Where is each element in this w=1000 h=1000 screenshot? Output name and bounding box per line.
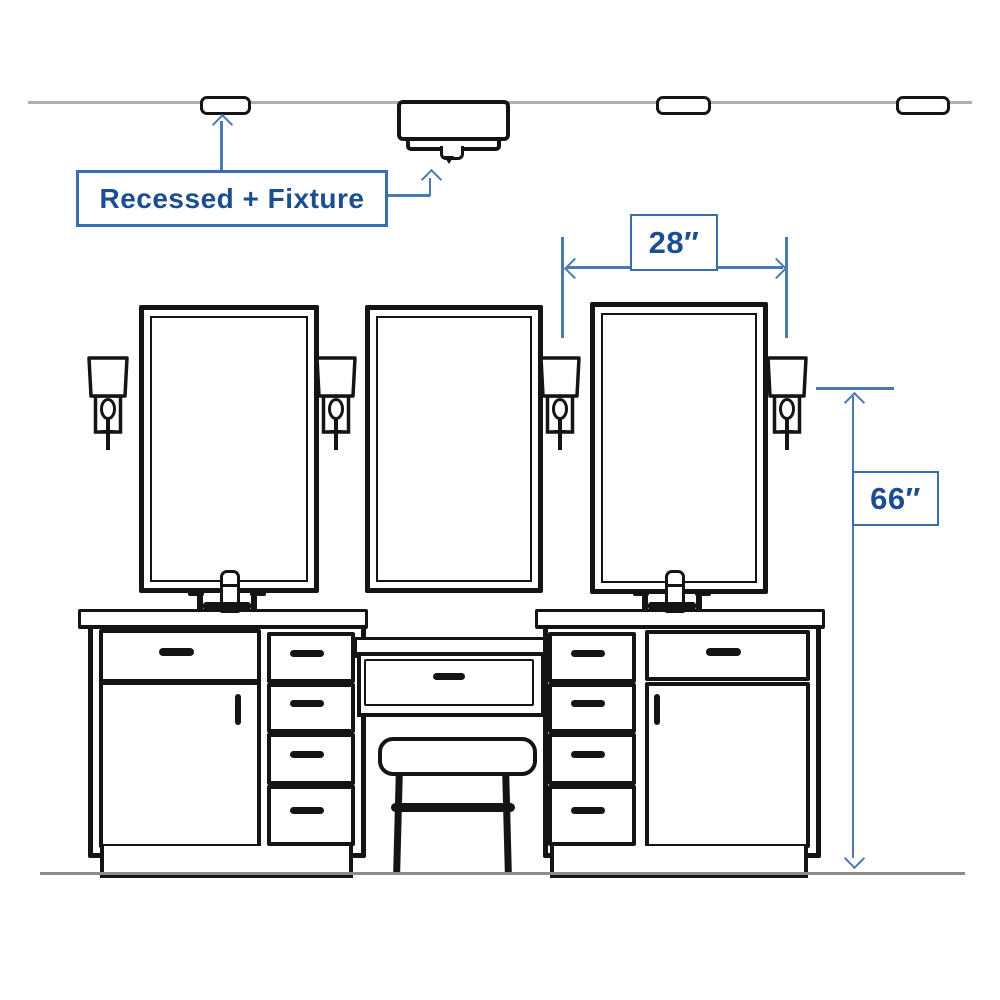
drawer-handle bbox=[571, 751, 605, 758]
diagram-canvas: Recessed + Fixture 28″ 66″ bbox=[0, 0, 1000, 1000]
arrow-up-icon bbox=[420, 169, 441, 190]
drawer-handle bbox=[290, 700, 324, 707]
dimension-label-box: 66″ bbox=[852, 471, 939, 526]
drawer bbox=[548, 632, 636, 683]
faucet-spout-line bbox=[668, 584, 682, 587]
drawer-handle bbox=[290, 751, 324, 758]
mirror bbox=[365, 305, 543, 593]
drawer bbox=[267, 632, 355, 683]
mirror-inner-frame bbox=[376, 316, 532, 582]
faucet-base bbox=[203, 602, 251, 610]
drawer bbox=[645, 630, 810, 681]
recessed-light-icon bbox=[656, 96, 711, 115]
drawer-handle bbox=[571, 650, 605, 657]
dimension-label-box: 28″ bbox=[630, 214, 718, 271]
callout-connector-h bbox=[382, 194, 430, 197]
drawer-handle bbox=[706, 648, 741, 656]
wall-sconce-icon bbox=[765, 356, 809, 452]
dimension-line bbox=[852, 396, 855, 858]
drawer bbox=[267, 733, 355, 785]
drawer bbox=[267, 683, 355, 733]
drawer bbox=[548, 785, 636, 846]
makeup-drawer bbox=[364, 659, 534, 706]
arrow-up-icon bbox=[843, 392, 864, 413]
drawer-handle bbox=[571, 700, 605, 707]
drawer-handle bbox=[159, 648, 194, 656]
wall-sconce-icon bbox=[314, 356, 358, 452]
door-handle bbox=[235, 694, 241, 725]
faucet-handle-right bbox=[251, 595, 257, 609]
floor-line bbox=[40, 872, 965, 875]
drawer bbox=[548, 733, 636, 785]
faucet-base bbox=[648, 602, 696, 610]
dimension-value: 28″ bbox=[649, 225, 700, 261]
arrow-right-icon bbox=[765, 258, 786, 279]
wall-sconce-icon bbox=[86, 356, 130, 452]
fixture-body bbox=[397, 100, 510, 141]
door-handle bbox=[654, 694, 660, 725]
drawer-handle bbox=[290, 807, 324, 814]
fixture-tip bbox=[444, 156, 454, 164]
arrow-down-icon bbox=[843, 848, 864, 869]
drawer bbox=[267, 785, 355, 846]
wall-sconce-icon bbox=[538, 356, 582, 452]
callout-label: Recessed + Fixture bbox=[99, 183, 364, 215]
drawer bbox=[99, 629, 261, 683]
drawer-handle bbox=[571, 807, 605, 814]
recessed-light-icon bbox=[896, 96, 950, 115]
drawer-handle bbox=[433, 673, 465, 680]
drawer-handle bbox=[290, 650, 324, 657]
arrow-left-icon bbox=[563, 258, 584, 279]
dimension-value: 66″ bbox=[870, 481, 921, 517]
mirror bbox=[590, 302, 768, 594]
height-tick-line bbox=[816, 387, 894, 390]
cabinet-door bbox=[645, 682, 810, 848]
arrow-up-icon bbox=[211, 114, 232, 135]
stool-leg bbox=[502, 765, 512, 874]
drawer bbox=[548, 683, 636, 733]
mirror-inner-frame bbox=[601, 313, 757, 583]
extension-line-left bbox=[561, 237, 564, 338]
recessed-light-icon bbox=[200, 96, 251, 115]
faucet-handle-right bbox=[696, 595, 702, 609]
stool-crossbar bbox=[391, 803, 515, 812]
stool-seat bbox=[378, 737, 537, 776]
extension-line-right bbox=[785, 237, 788, 338]
mirror-inner-frame bbox=[150, 316, 308, 582]
stool-leg bbox=[393, 765, 403, 874]
callout-label-box: Recessed + Fixture bbox=[76, 170, 388, 227]
mirror bbox=[139, 305, 319, 593]
faucet-spout-line bbox=[223, 584, 237, 587]
